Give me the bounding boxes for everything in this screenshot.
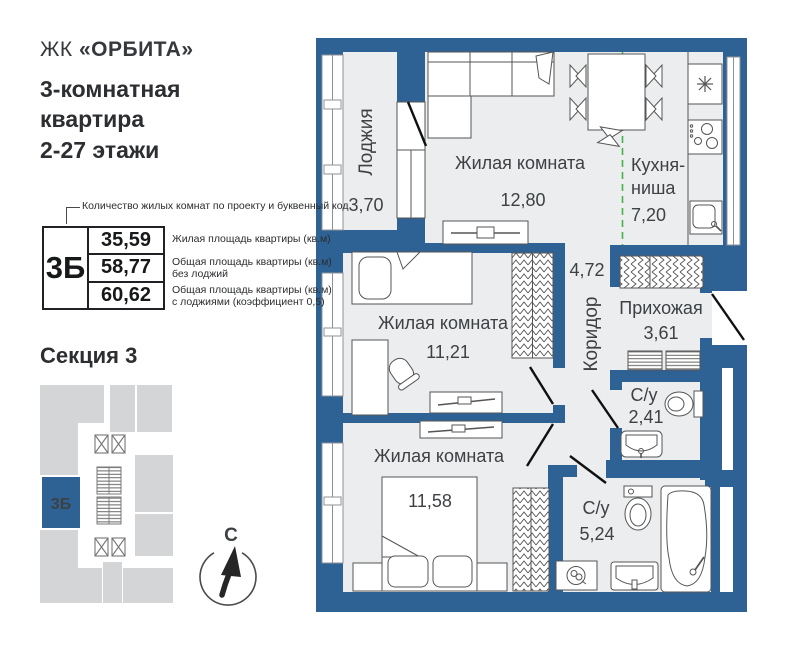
hall-area: 3,61 [643, 323, 678, 343]
legend-values: 35,59 58,77 60,62 [89, 228, 163, 308]
minimap-unit-code: 3Б [51, 496, 71, 513]
bed-single [352, 252, 472, 304]
stove-icon [688, 120, 722, 154]
legend-label-total-loggia: Общая площадь квартиры (кв.м) с лоджиями… [172, 284, 332, 309]
legend-value-living: 35,59 [89, 228, 163, 253]
wardrobe-bedroom2 [512, 253, 553, 358]
brand-name: «ОРБИТА» [79, 38, 194, 61]
legend-value-total: 58,77 [89, 253, 163, 280]
bedroom2-label: Жилая комната [378, 313, 509, 333]
compass-north-label: С [224, 525, 238, 546]
living-area: 12,80 [500, 190, 545, 210]
legend-label-total: Общая площадь квартиры (кв.м) без лоджий [172, 256, 332, 281]
stairs-icon [97, 467, 121, 524]
section-title: Секция 3 [40, 343, 137, 369]
kitchen-label-line2: ниша [631, 178, 676, 198]
compass: С [200, 525, 256, 605]
sink-small [621, 431, 662, 458]
loggia-label: Лоджия [356, 108, 377, 175]
toilet-small [665, 391, 703, 417]
corridor-area: 4,72 [569, 260, 604, 280]
apartment-title: 3-комнатная квартира 2-27 этажи [40, 74, 180, 165]
bath-big-area: 5,24 [579, 524, 614, 544]
living-label: Жилая комната [455, 153, 586, 173]
legend-code: 3Б [44, 228, 89, 308]
bath-small-label: С/у [631, 385, 658, 405]
hall-label: Прихожая [619, 298, 702, 318]
toilet-big [624, 486, 652, 530]
floor-plan: Лоджия 3,70 Жилая комната 12,80 Кухня- н… [316, 38, 747, 612]
legend-label-living: Жилая площадь квартиры (кв.м) [172, 233, 332, 245]
washing-machine [556, 561, 597, 590]
legend-callout: Количество жилых комнат по проекту и бук… [82, 200, 348, 212]
section-minimap: 3Б [40, 385, 173, 603]
sink-big [611, 562, 658, 590]
legend-callout-connector [66, 207, 80, 224]
tv-stand-living [443, 221, 528, 244]
bedroom3-label: Жилая комната [374, 446, 505, 466]
brand: ЖК «ОРБИТА» [40, 38, 194, 62]
bedroom2-area: 11,21 [426, 342, 470, 362]
balcony-door [397, 102, 425, 218]
bath-small-area: 2,41 [628, 407, 663, 427]
kitchen-appliances [688, 52, 722, 245]
brand-prefix: ЖК [40, 38, 73, 61]
legend-value-total-loggia: 60,62 [89, 281, 163, 308]
floorplan-page: { "brand": {"prefix": "ЖК", "name": "«ОР… [0, 0, 800, 645]
bath-big-label: С/у [583, 498, 610, 518]
bedroom3-area: 11,58 [408, 491, 452, 511]
elevators-icon [95, 435, 125, 556]
kitchen-area: 7,20 [631, 205, 666, 225]
legend-table: 3Б 35,59 58,77 60,62 [42, 226, 165, 310]
bathtub [661, 486, 711, 592]
loggia-area: 3,70 [348, 195, 383, 215]
wardrobe-bedroom3 [513, 488, 549, 591]
tv-stand-bedroom2 [430, 392, 502, 413]
kitchen-label-line1: Кухня- [631, 155, 685, 175]
hall-closet [620, 256, 703, 288]
corridor-label: Коридор [581, 296, 602, 371]
tv-stand-bedroom3 [420, 421, 502, 438]
